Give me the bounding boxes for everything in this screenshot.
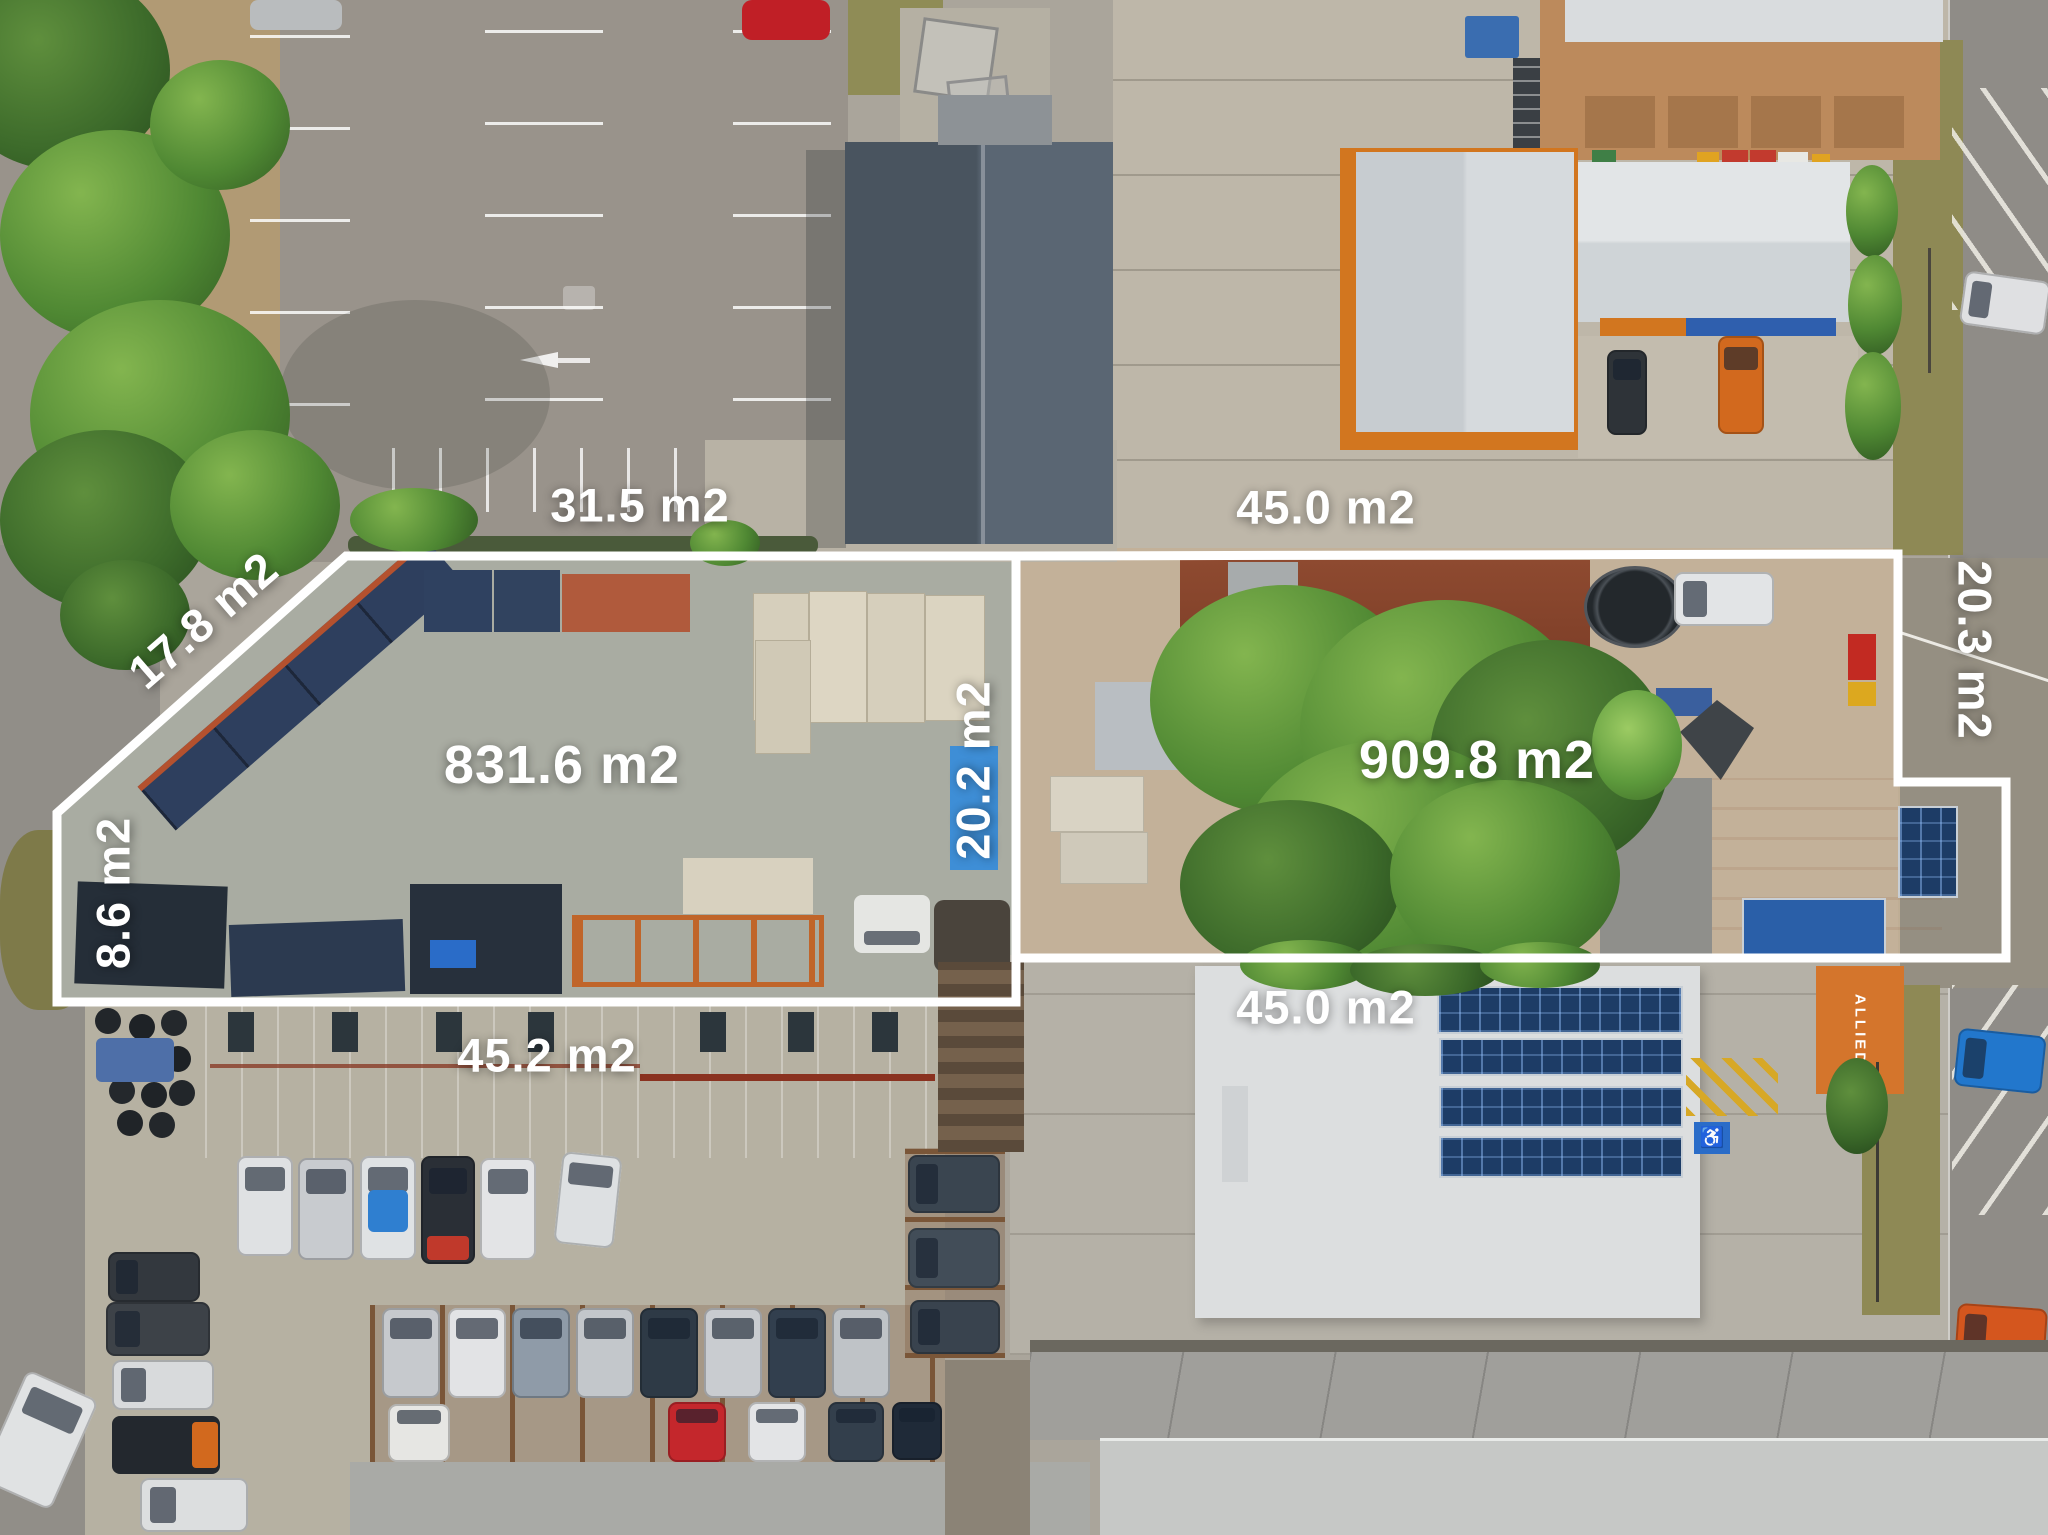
- area-label-45-0-bottom: 45.0 m2: [1236, 980, 1415, 1035]
- area-label-31-5: 31.5 m2: [550, 478, 729, 533]
- area-label-20-3: 20.3 m2: [1948, 560, 2003, 739]
- lot-boundary-overlay: [0, 0, 2048, 1535]
- area-label-45-2: 45.2 m2: [457, 1028, 636, 1083]
- aerial-photo-scene: ALLIED ♿ 31.5 m2 45.0 m2 17.8 m2 20.3 m2…: [0, 0, 2048, 1535]
- area-label-20-2: 20.2 m2: [946, 680, 1001, 859]
- area-label-45-0-top: 45.0 m2: [1236, 480, 1415, 535]
- area-label-lot2: 909.8 m2: [1359, 729, 1595, 791]
- area-label-8-6: 8.6 m2: [86, 817, 141, 969]
- area-label-lot1: 831.6 m2: [444, 734, 680, 796]
